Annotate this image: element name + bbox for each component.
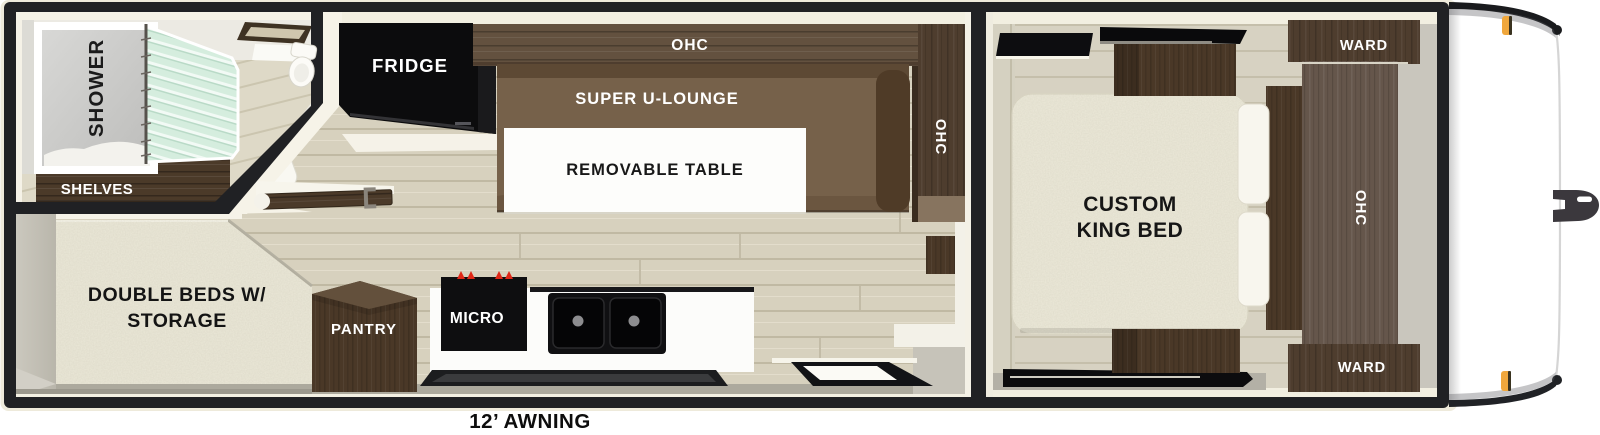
svg-text:STORAGE: STORAGE: [127, 310, 227, 332]
svg-text:CUSTOM: CUSTOM: [1083, 193, 1177, 216]
svg-text:FRIDGE: FRIDGE: [372, 55, 448, 76]
svg-text:12’ AWNING: 12’ AWNING: [469, 410, 591, 433]
svg-text:SUPER U-LOUNGE: SUPER U-LOUNGE: [575, 90, 738, 108]
svg-text:PANTRY: PANTRY: [331, 321, 397, 338]
svg-text:OHC: OHC: [932, 119, 949, 155]
svg-text:WARD: WARD: [1340, 38, 1388, 54]
svg-text:MICRO: MICRO: [450, 310, 504, 327]
svg-text:KING BED: KING BED: [1077, 219, 1184, 242]
svg-text:OHC: OHC: [671, 37, 708, 54]
svg-text:OHC: OHC: [1352, 190, 1369, 226]
svg-text:SHELVES: SHELVES: [61, 181, 133, 198]
svg-text:SHOWER: SHOWER: [85, 39, 108, 137]
svg-text:WARD: WARD: [1338, 360, 1386, 376]
svg-text:DOUBLE BEDS W/: DOUBLE BEDS W/: [88, 284, 266, 306]
svg-text:REMOVABLE TABLE: REMOVABLE TABLE: [566, 161, 744, 179]
